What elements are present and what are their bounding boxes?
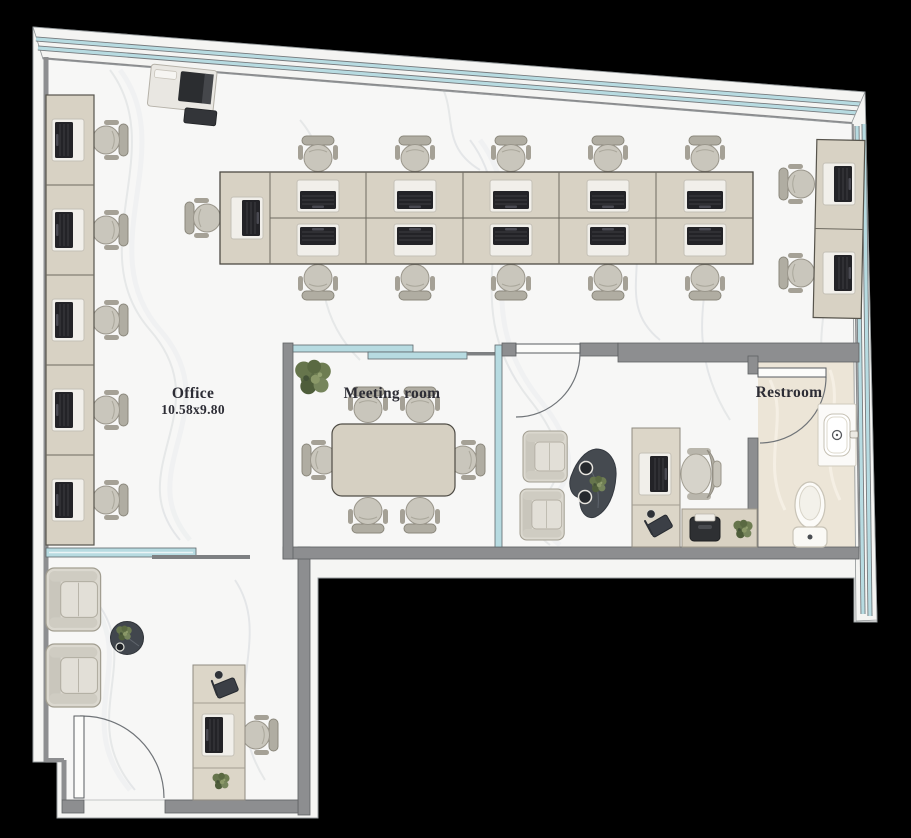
restroom-label: Restroom xyxy=(756,384,823,401)
laptop xyxy=(52,209,84,251)
armchair xyxy=(523,431,567,482)
meeting-glass-slider-a xyxy=(293,345,413,352)
meeting-room-label: Meeting room xyxy=(344,385,441,402)
restroom-wall-stub xyxy=(748,356,758,374)
low-partition xyxy=(152,555,250,559)
exec-top-wall-a xyxy=(580,343,618,356)
laptop xyxy=(202,714,234,756)
laptop xyxy=(684,180,726,212)
meeting-glass-slider-b xyxy=(368,352,467,359)
meeting-left-wall xyxy=(283,343,293,559)
laptop xyxy=(587,180,629,212)
laptop xyxy=(823,163,855,205)
laptop xyxy=(639,453,671,495)
wing-bottom-wall-left xyxy=(62,800,84,813)
laptop xyxy=(52,299,84,341)
armchair xyxy=(46,568,101,631)
door-leaf xyxy=(74,716,84,798)
floor-plan-page: Office 10.58x9.80 Meeting room Restroom xyxy=(0,0,911,838)
meeting-glass-track xyxy=(467,352,498,356)
floor-plan: Office 10.58x9.80 Meeting room Restroom xyxy=(0,0,911,838)
laptop xyxy=(823,252,855,294)
office-dimensions: 10.58x9.80 xyxy=(161,402,225,417)
exec-top-wall-b xyxy=(618,343,859,362)
laptop xyxy=(52,119,84,161)
laptop xyxy=(684,224,726,256)
laptop xyxy=(490,180,532,212)
wing-right-wall xyxy=(298,547,310,815)
wing-bottom-wall-right xyxy=(165,800,298,813)
laptop xyxy=(52,479,84,521)
laptop xyxy=(297,180,339,212)
main-bottom-wall xyxy=(283,547,859,559)
door-leaf xyxy=(516,344,580,353)
armchair xyxy=(520,489,564,540)
door-leaf xyxy=(758,368,826,377)
toilet xyxy=(793,482,827,547)
coffee-cup xyxy=(579,491,592,504)
armchair xyxy=(46,644,101,707)
laptop xyxy=(52,389,84,431)
flush-button xyxy=(808,535,813,540)
laptop xyxy=(231,197,263,239)
laptop xyxy=(490,224,532,256)
desk-printer xyxy=(690,514,720,541)
restroom-sink xyxy=(818,404,858,466)
meeting-table xyxy=(332,424,455,496)
soap-dispenser xyxy=(850,431,858,438)
office-label: Office xyxy=(172,385,214,402)
meeting-right-glass-wall xyxy=(495,345,502,547)
laptop xyxy=(297,224,339,256)
laptop xyxy=(587,224,629,256)
laptop xyxy=(394,224,436,256)
exec-door-jamb xyxy=(502,343,516,356)
laptop xyxy=(394,180,436,212)
coffee-cup xyxy=(580,462,593,475)
coffee-cup xyxy=(116,643,124,651)
